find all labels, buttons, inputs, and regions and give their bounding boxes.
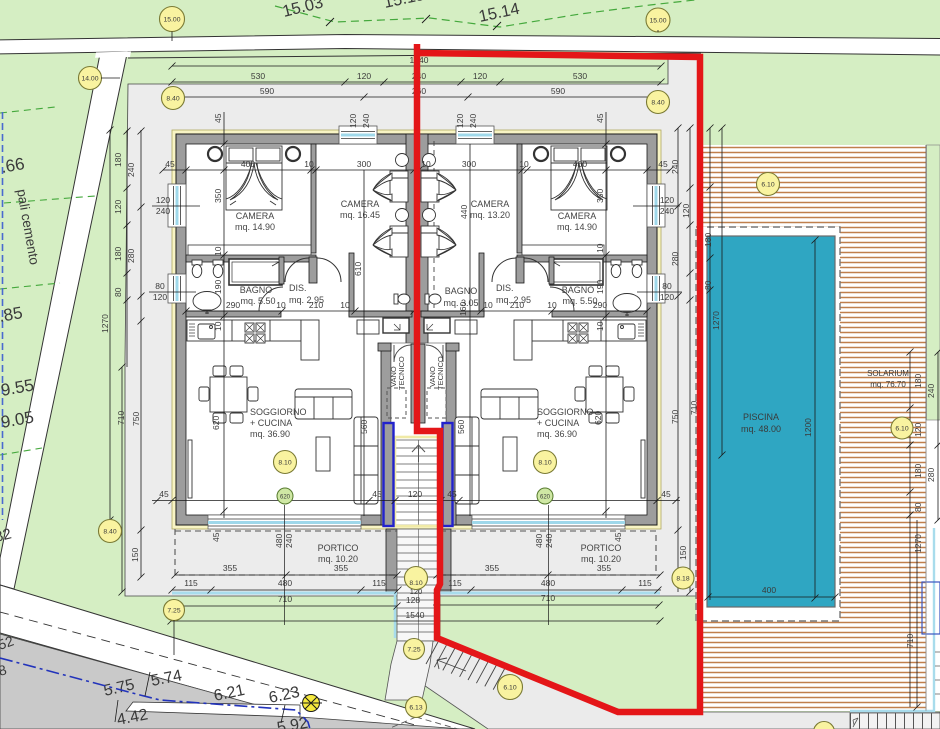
svg-text:560: 560 — [359, 420, 369, 434]
svg-text:280: 280 — [926, 468, 936, 482]
svg-text:80: 80 — [155, 281, 165, 291]
svg-text:45: 45 — [159, 489, 169, 499]
svg-text:8.10: 8.10 — [409, 580, 422, 587]
svg-text:120: 120 — [455, 114, 465, 128]
svg-text:10: 10 — [276, 300, 286, 310]
svg-text:180: 180 — [703, 233, 713, 247]
svg-text:480: 480 — [278, 578, 292, 588]
svg-text:120: 120 — [660, 195, 674, 205]
svg-text:6.10: 6.10 — [503, 685, 516, 692]
svg-text:PORTICO: PORTICO — [581, 543, 622, 553]
svg-text:128: 128 — [406, 595, 420, 605]
svg-text:8.10: 8.10 — [278, 460, 291, 467]
svg-text:180: 180 — [113, 153, 123, 167]
svg-text:mq. 48.00: mq. 48.00 — [741, 424, 781, 434]
svg-text:280: 280 — [126, 249, 136, 263]
svg-text:120: 120 — [156, 195, 170, 205]
svg-text:CAMERA: CAMERA — [236, 211, 275, 221]
svg-text:80: 80 — [113, 287, 123, 297]
svg-text:710: 710 — [278, 594, 292, 604]
svg-text:6.10: 6.10 — [895, 426, 908, 433]
svg-text:530: 530 — [251, 71, 265, 81]
svg-text:150: 150 — [678, 546, 688, 560]
svg-text:8.40: 8.40 — [166, 96, 179, 103]
svg-text:350: 350 — [595, 189, 605, 203]
svg-text:TECNICO: TECNICO — [436, 356, 445, 390]
svg-text:SOGGIORNO: SOGGIORNO — [537, 407, 594, 417]
svg-text:120: 120 — [153, 292, 167, 302]
svg-text:80: 80 — [913, 502, 923, 512]
svg-text:mq. 16.45: mq. 16.45 — [340, 210, 380, 220]
svg-text:240: 240 — [926, 384, 936, 398]
svg-text:6.10: 6.10 — [761, 182, 774, 189]
svg-text:180: 180 — [913, 464, 923, 478]
svg-text:240: 240 — [126, 163, 136, 177]
svg-text:mq. 5.50: mq. 5.50 — [240, 296, 275, 306]
svg-text:620: 620 — [593, 411, 603, 425]
svg-text:mq. 14.90: mq. 14.90 — [557, 222, 597, 232]
svg-text:115: 115 — [184, 578, 198, 588]
svg-text:530: 530 — [573, 71, 587, 81]
svg-text:CAMERA: CAMERA — [341, 199, 380, 209]
svg-text:mq. 36.90: mq. 36.90 — [250, 429, 290, 439]
svg-text:120: 120 — [660, 292, 674, 302]
svg-text:mq. 36.90: mq. 36.90 — [537, 429, 577, 439]
svg-text:400: 400 — [573, 159, 587, 169]
svg-text:355: 355 — [485, 563, 499, 573]
svg-text:45: 45 — [165, 159, 175, 169]
svg-text:120: 120 — [681, 204, 691, 218]
svg-text:14.00: 14.00 — [81, 76, 98, 83]
svg-text:120: 120 — [408, 489, 422, 499]
svg-text:1270: 1270 — [913, 534, 923, 553]
svg-text:190: 190 — [595, 280, 605, 294]
svg-text:PISCINA: PISCINA — [743, 412, 779, 422]
svg-text:SOLARIUM: SOLARIUM — [867, 369, 909, 378]
svg-text:7.25: 7.25 — [167, 608, 180, 615]
svg-text:10: 10 — [213, 321, 223, 331]
svg-text:590: 590 — [551, 86, 565, 96]
svg-text:45: 45 — [213, 113, 223, 123]
svg-text:120: 120 — [113, 200, 123, 214]
svg-text:45: 45 — [447, 489, 457, 499]
svg-text:45: 45 — [372, 489, 382, 499]
svg-text:.66: .66 — [0, 154, 26, 177]
svg-text:590: 590 — [260, 86, 274, 96]
svg-text:300: 300 — [357, 159, 371, 169]
svg-text:120: 120 — [348, 114, 358, 128]
svg-text:mq. 14.90: mq. 14.90 — [235, 222, 275, 232]
svg-text:440: 440 — [459, 205, 469, 219]
svg-text:8.18: 8.18 — [676, 576, 689, 583]
svg-text:10: 10 — [547, 300, 557, 310]
svg-text:400: 400 — [762, 585, 776, 595]
svg-text:240: 240 — [544, 534, 554, 548]
svg-text:10: 10 — [421, 159, 431, 169]
svg-text:CAMERA: CAMERA — [558, 211, 597, 221]
svg-text:210: 210 — [309, 300, 323, 310]
svg-text:1540: 1540 — [406, 610, 425, 620]
svg-text:8.40: 8.40 — [651, 100, 664, 107]
svg-text:45: 45 — [658, 159, 668, 169]
svg-text:80: 80 — [703, 280, 713, 290]
svg-text:480: 480 — [541, 578, 555, 588]
svg-text:SOGGIORNO: SOGGIORNO — [250, 407, 307, 417]
svg-text:1270: 1270 — [711, 311, 721, 330]
svg-text:350: 350 — [213, 189, 223, 203]
svg-text:10: 10 — [483, 300, 493, 310]
svg-text:290: 290 — [593, 300, 607, 310]
svg-text:1270: 1270 — [100, 314, 110, 333]
svg-text:240: 240 — [156, 206, 170, 216]
svg-text:mq. 76.70: mq. 76.70 — [870, 380, 906, 389]
svg-text:240: 240 — [468, 114, 478, 128]
svg-text:120: 120 — [357, 71, 371, 81]
svg-text:10: 10 — [340, 300, 350, 310]
svg-text:+ CUCINA: + CUCINA — [537, 418, 579, 428]
svg-text:355: 355 — [223, 563, 237, 573]
svg-text:10: 10 — [519, 159, 529, 169]
svg-text:115: 115 — [638, 578, 652, 588]
svg-text:BAGNO: BAGNO — [445, 286, 478, 296]
svg-text:210: 210 — [510, 300, 524, 310]
svg-text:TECNICO: TECNICO — [397, 356, 406, 390]
svg-text:10: 10 — [595, 321, 605, 331]
svg-text:BAGNO: BAGNO — [240, 285, 273, 295]
svg-text:115: 115 — [448, 578, 462, 588]
svg-text:mq. 13.20: mq. 13.20 — [470, 210, 510, 220]
svg-text:610: 610 — [353, 262, 363, 276]
svg-text:480: 480 — [534, 534, 544, 548]
svg-text:10: 10 — [595, 243, 605, 253]
svg-text:8.40: 8.40 — [103, 529, 116, 536]
svg-text:120: 120 — [473, 71, 487, 81]
svg-text:120: 120 — [913, 423, 923, 437]
svg-text:DIS.: DIS. — [496, 283, 514, 293]
svg-text:300: 300 — [462, 159, 476, 169]
svg-text:CAMERA: CAMERA — [471, 199, 510, 209]
svg-text:480: 480 — [274, 534, 284, 548]
svg-text:6.13: 6.13 — [409, 705, 422, 712]
svg-text:DIS.: DIS. — [289, 283, 307, 293]
svg-text:45: 45 — [661, 489, 671, 499]
svg-text:15.00: 15.00 — [649, 18, 666, 25]
svg-text:355: 355 — [597, 563, 611, 573]
svg-text:45: 45 — [595, 113, 605, 123]
svg-text:115: 115 — [372, 578, 386, 588]
svg-text:10: 10 — [304, 159, 314, 169]
svg-text:15.00: 15.00 — [163, 17, 180, 24]
svg-text:750: 750 — [131, 412, 141, 426]
svg-text:710: 710 — [116, 411, 126, 425]
svg-text:180: 180 — [913, 374, 923, 388]
svg-text:80: 80 — [662, 281, 672, 291]
svg-text:620: 620 — [540, 495, 551, 501]
svg-text:150: 150 — [130, 548, 140, 562]
svg-text:400: 400 — [241, 159, 255, 169]
svg-text:180: 180 — [113, 247, 123, 261]
svg-text:BAGNO: BAGNO — [562, 285, 595, 295]
svg-text:45: 45 — [211, 532, 221, 542]
svg-text:160: 160 — [458, 302, 468, 316]
svg-text:240: 240 — [284, 534, 294, 548]
svg-text:290: 290 — [226, 300, 240, 310]
svg-text:710: 710 — [541, 593, 555, 603]
svg-text:750: 750 — [670, 410, 680, 424]
svg-text:45: 45 — [613, 532, 623, 542]
svg-text:620: 620 — [280, 495, 291, 501]
svg-text:PORTICO: PORTICO — [318, 543, 359, 553]
svg-text:190: 190 — [213, 280, 223, 294]
svg-text:240: 240 — [361, 114, 371, 128]
svg-text:240: 240 — [670, 160, 680, 174]
svg-text:355: 355 — [334, 563, 348, 573]
svg-text:+ CUCINA: + CUCINA — [250, 418, 292, 428]
svg-text:620: 620 — [211, 416, 221, 430]
svg-text:10: 10 — [213, 246, 223, 256]
svg-text:560: 560 — [456, 420, 466, 434]
svg-text:710: 710 — [905, 634, 915, 648]
svg-text:240: 240 — [660, 206, 674, 216]
svg-text:280: 280 — [670, 252, 680, 266]
svg-text:8.10: 8.10 — [538, 460, 551, 467]
svg-text:7.25: 7.25 — [407, 647, 420, 654]
svg-text:1200: 1200 — [803, 418, 813, 437]
